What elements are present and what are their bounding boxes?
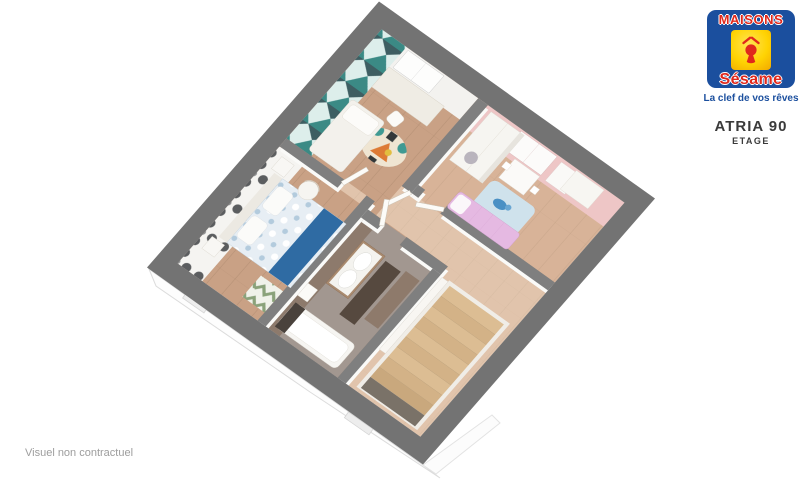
logo-secondary-text: Sésame	[720, 72, 783, 88]
disclaimer-text: Visuel non contractuel	[25, 447, 133, 459]
keyhole-house-icon	[731, 30, 771, 70]
logo-tagline: La clef de vos rêves	[703, 93, 798, 104]
floorplan-render	[0, 0, 811, 480]
logo-yellow-square	[731, 30, 771, 70]
plan-model-title: ATRIA 90	[714, 118, 787, 135]
maisons-sesame-logo: MAISONS Sésame	[707, 10, 795, 88]
logo-primary-text: MAISONS	[719, 13, 784, 27]
floorplan-page: MAISONS Sésame La clef de vos rêves ATRI…	[0, 0, 811, 480]
brand-column: MAISONS Sésame La clef de vos rêves ATRI…	[693, 10, 809, 146]
plan-level-label: ETAGE	[732, 136, 770, 146]
